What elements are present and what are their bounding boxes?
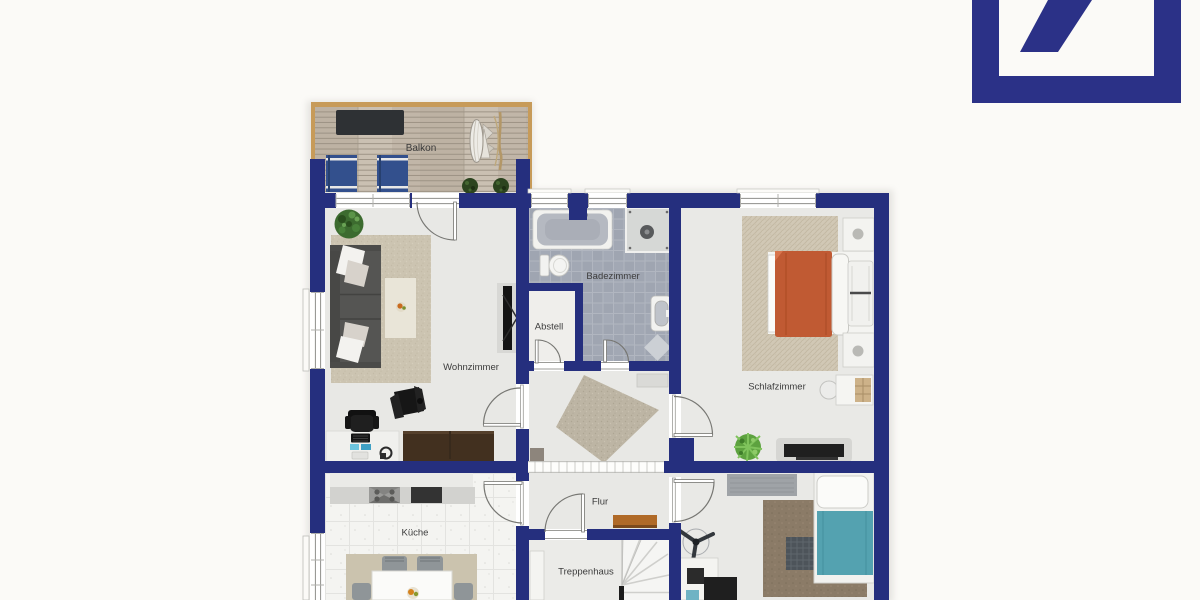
svg-text:Küche: Küche xyxy=(402,528,429,539)
svg-text:Flur: Flur xyxy=(592,497,608,508)
svg-text:Treppenhaus: Treppenhaus xyxy=(558,567,614,578)
svg-text:Schlafzimmer: Schlafzimmer xyxy=(748,382,806,393)
svg-text:Wohnzimmer: Wohnzimmer xyxy=(443,362,499,373)
svg-text:Balkon: Balkon xyxy=(406,143,437,154)
svg-text:Abstell: Abstell xyxy=(535,322,564,333)
svg-text:Badezimmer: Badezimmer xyxy=(586,271,639,282)
